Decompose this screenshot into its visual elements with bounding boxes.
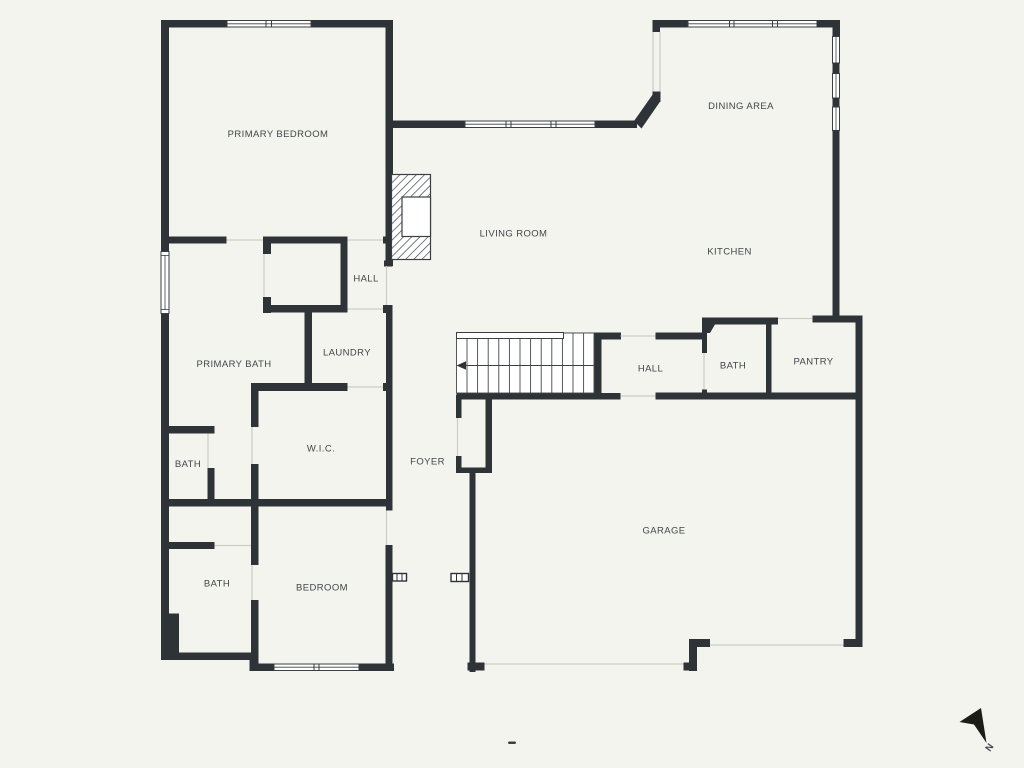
svg-text:PANTRY: PANTRY (793, 357, 833, 368)
svg-text:BATH: BATH (204, 579, 230, 590)
svg-text:PRIMARY BATH: PRIMARY BATH (196, 359, 271, 370)
svg-text:PRIMARY BEDROOM: PRIMARY BEDROOM (228, 129, 329, 140)
svg-text:BATH: BATH (175, 459, 201, 470)
svg-text:HALL: HALL (638, 364, 663, 375)
svg-text:DINING AREA: DINING AREA (708, 101, 774, 112)
svg-text:W.I.C.: W.I.C. (307, 444, 335, 455)
svg-text:BATH: BATH (720, 361, 746, 372)
svg-text:GARAGE: GARAGE (642, 526, 685, 537)
svg-text:LIVING ROOM: LIVING ROOM (480, 229, 548, 240)
svg-text:BEDROOM: BEDROOM (296, 583, 348, 594)
svg-text:LAUNDRY: LAUNDRY (323, 348, 371, 359)
svg-text:HALL: HALL (353, 274, 378, 285)
svg-text:FOYER: FOYER (410, 457, 445, 468)
svg-text:KITCHEN: KITCHEN (707, 247, 752, 258)
